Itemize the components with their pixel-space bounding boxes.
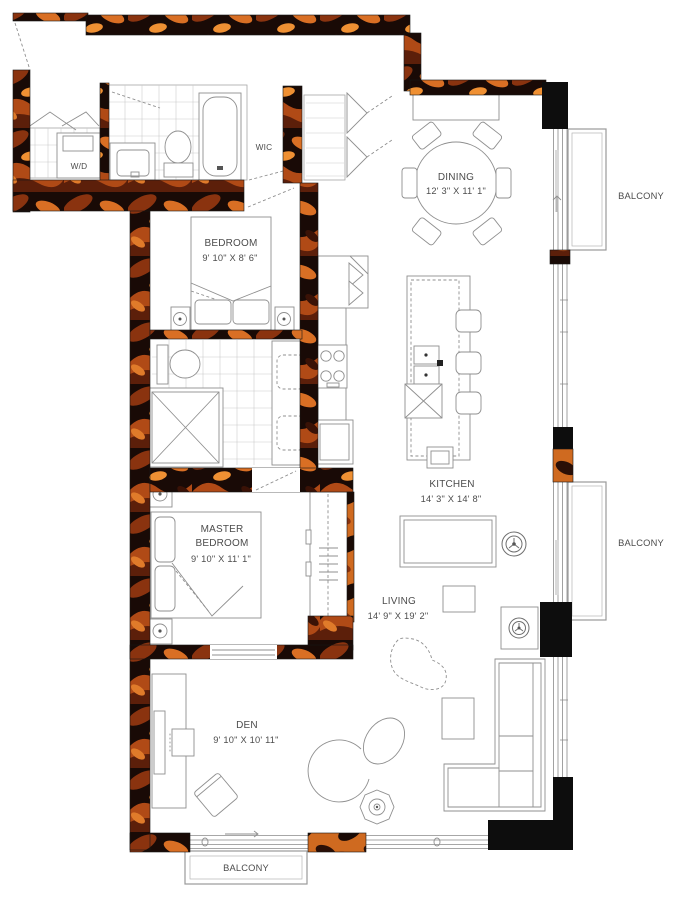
side-table	[442, 698, 474, 739]
kitchen-dims: 14' 3" X 14' 8"	[421, 494, 482, 504]
wall-west	[130, 208, 150, 850]
washer-dryer	[57, 133, 100, 178]
laundry-label: W/D	[71, 161, 88, 171]
master-wardrobe	[306, 492, 348, 620]
ceiling-fixture-symbol	[502, 532, 526, 556]
refrigerator	[316, 420, 353, 464]
tv-console	[400, 516, 496, 567]
wall-ensuite-south	[150, 468, 353, 492]
wall-top-thin	[13, 13, 88, 21]
wall-corner-ne	[542, 82, 568, 129]
master-label-1: MASTER	[201, 524, 244, 535]
balcony-label-bottom: BALCONY	[223, 863, 269, 873]
balcony-label-lower: BALCONY	[618, 538, 664, 548]
toilet	[164, 131, 193, 177]
balcony-label-upper: BALCONY	[618, 191, 664, 201]
island-sink	[405, 384, 442, 418]
window-band-right-lower	[552, 657, 568, 777]
dining-area: DINING 12' 3" X 11' 1"	[402, 92, 511, 246]
den-dims: 9' 10" X 10' 11"	[213, 735, 278, 745]
wall-wardrobe-east	[347, 492, 354, 622]
balcony-bottom: BALCONY	[185, 851, 307, 884]
wall-kitchen-west	[300, 183, 318, 470]
ceiling-fixture-symbol-boxed	[501, 607, 538, 649]
master-label-2: BEDROOM	[195, 538, 248, 549]
bedroom-dims: 9' 10" X 8' 6"	[202, 253, 257, 263]
floor-plan-page: W/D WIC	[0, 0, 687, 900]
wall-hall-south	[13, 180, 244, 211]
dining-dims: 12' 3" X 11' 1"	[426, 186, 486, 196]
bedroom-label: BEDROOM	[204, 238, 257, 249]
window-band-right-mid	[552, 264, 568, 427]
cooktop	[317, 345, 347, 388]
sideboard	[413, 92, 499, 120]
bar-stools	[456, 310, 481, 414]
den-label: DEN	[236, 720, 258, 731]
wall-bottom-mid	[308, 833, 366, 852]
den-side-table	[360, 790, 394, 824]
floor-plan-drawing: W/D WIC	[0, 0, 687, 900]
living-label: LIVING	[382, 596, 416, 607]
master-dims: 9' 10" X 11' 1"	[191, 554, 251, 564]
shower	[148, 388, 223, 467]
kitchen-label: KITCHEN	[429, 479, 474, 490]
wic-label: WIC	[256, 142, 273, 152]
side-table	[443, 586, 475, 612]
wall-step-horizontal	[410, 80, 546, 95]
window-band-right-balcony2	[552, 482, 568, 602]
bathtub	[199, 93, 241, 180]
dining-label: DINING	[438, 172, 474, 183]
window-band-right-upper	[552, 129, 568, 250]
living-dims: 14' 9" X 19' 2"	[368, 611, 429, 621]
bathroom-vanity	[110, 143, 155, 180]
wall-top-main	[86, 15, 410, 35]
dining-table	[415, 142, 497, 224]
